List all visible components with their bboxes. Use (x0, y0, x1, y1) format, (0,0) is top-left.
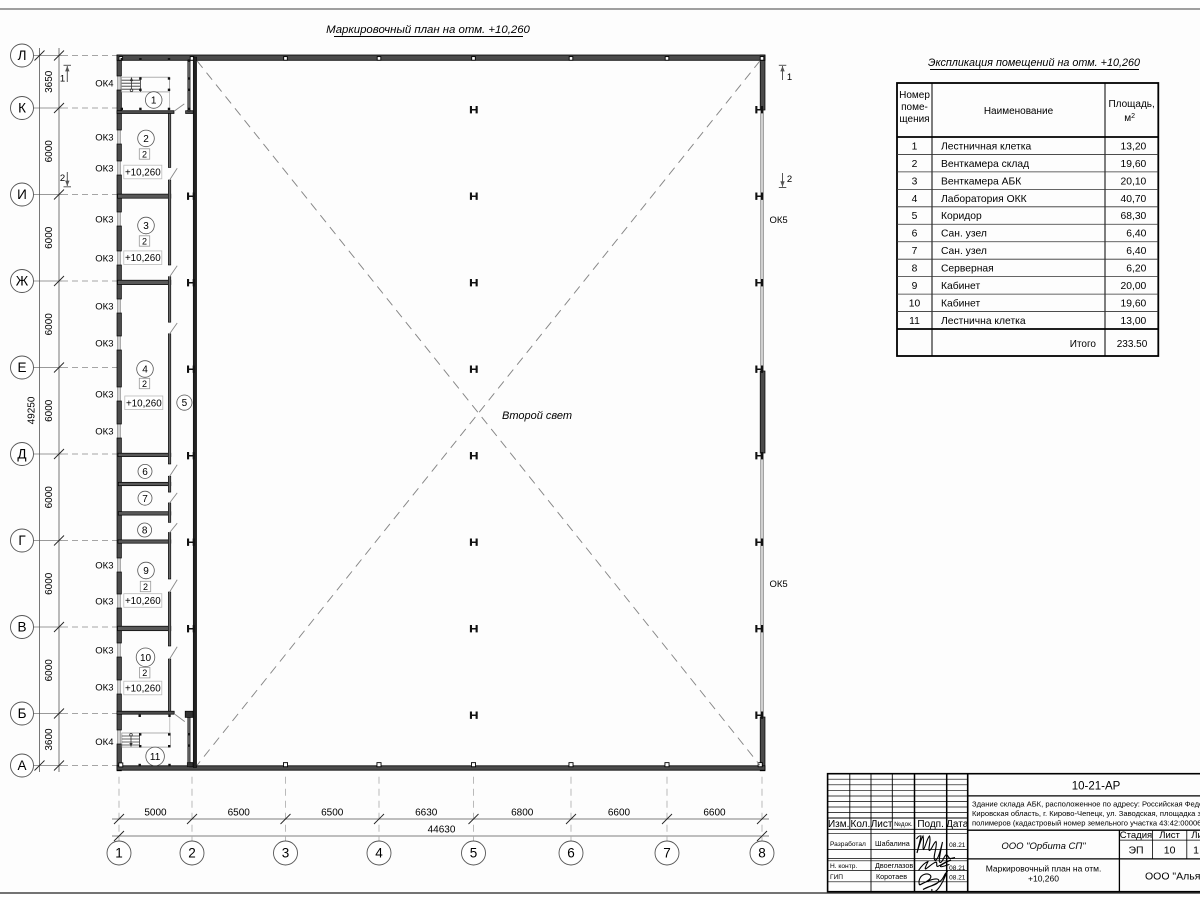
svg-text:Наименование: Наименование (984, 106, 1054, 117)
svg-text:ОК4: ОК4 (95, 79, 113, 90)
svg-text:5: 5 (470, 846, 478, 861)
svg-text:7: 7 (663, 846, 671, 861)
svg-text:6000: 6000 (44, 140, 55, 163)
svg-text:ОК3: ОК3 (95, 254, 113, 265)
svg-text:Ли: Ли (1191, 830, 1200, 841)
svg-text:№док.: №док. (894, 821, 913, 828)
svg-text:ООО "Альянс: ООО "Альянс (1145, 871, 1200, 883)
svg-text:6000: 6000 (44, 572, 55, 595)
svg-text:6000: 6000 (44, 486, 55, 509)
svg-text:полимеров (кадастровый номер з: полимеров (кадастровый номер земельного … (972, 819, 1200, 828)
svg-text:13,00: 13,00 (1121, 316, 1147, 327)
svg-text:10: 10 (140, 653, 152, 664)
svg-text:Здание склада АБК, расположенн: Здание склада АБК, расположенное по адре… (972, 800, 1200, 809)
svg-text:1: 1 (787, 72, 792, 83)
svg-text:Лестнична клетка: Лестнична клетка (941, 316, 1026, 327)
svg-text:ГИП: ГИП (830, 874, 843, 881)
svg-text:+10,260: +10,260 (125, 596, 161, 607)
svg-text:Л: Л (18, 48, 27, 63)
svg-text:6000: 6000 (44, 399, 55, 422)
svg-text:8: 8 (912, 264, 918, 275)
svg-text:40,70: 40,70 (1121, 194, 1147, 205)
svg-text:Разработал: Разработал (830, 840, 866, 848)
svg-text:И: И (17, 187, 27, 202)
svg-text:ОК4: ОК4 (95, 737, 113, 748)
svg-text:Коротаев: Коротаев (876, 872, 907, 881)
svg-text:Лестничная клетка: Лестничная клетка (941, 141, 1031, 152)
svg-text:08.21: 08.21 (949, 865, 966, 872)
svg-text:6800: 6800 (511, 808, 534, 819)
svg-text:2: 2 (60, 173, 65, 184)
svg-text:3: 3 (143, 221, 149, 232)
svg-text:Стадия: Стадия (1120, 830, 1152, 841)
svg-text:4: 4 (912, 194, 918, 205)
svg-text:Экспликация помещений на отм.: Экспликация помещений на отм. +10,260 (928, 57, 1140, 69)
svg-text:Маркировочный план на отм.: Маркировочный план на отм. (986, 864, 1102, 874)
svg-text:Д: Д (17, 447, 26, 462)
svg-text:Кабинет: Кабинет (941, 298, 980, 310)
svg-text:10: 10 (1164, 845, 1176, 857)
svg-text:Кабинет: Кабинет (941, 280, 980, 292)
svg-text:ООО "Орбита СП": ООО "Орбита СП" (1001, 841, 1086, 852)
svg-text:3650: 3650 (44, 70, 55, 93)
svg-text:ОК3: ОК3 (95, 339, 113, 350)
svg-text:13,20: 13,20 (1121, 141, 1147, 152)
svg-text:Е: Е (17, 360, 26, 375)
svg-text:Дата: Дата (946, 819, 969, 830)
svg-text:1: 1 (60, 74, 65, 85)
svg-text:Венткамера склад: Венткамера склад (941, 159, 1029, 170)
svg-text:ОК5: ОК5 (770, 579, 788, 590)
svg-text:ОК3: ОК3 (95, 302, 113, 313)
svg-text:6,20: 6,20 (1126, 264, 1146, 275)
svg-text:щения: щения (899, 114, 929, 125)
svg-text:1: 1 (151, 96, 157, 107)
svg-text:Сан. узел: Сан. узел (941, 229, 987, 240)
svg-text:6000: 6000 (44, 313, 55, 336)
svg-text:4: 4 (375, 846, 383, 861)
svg-text:2: 2 (142, 668, 147, 678)
svg-text:ОК3: ОК3 (95, 646, 113, 657)
svg-text:08.21: 08.21 (949, 842, 966, 849)
svg-text:Ж: Ж (16, 274, 29, 289)
svg-text:6000: 6000 (44, 659, 55, 682)
svg-text:+10,260: +10,260 (1028, 874, 1059, 884)
svg-text:8: 8 (758, 846, 766, 861)
svg-text:А: А (17, 758, 26, 773)
svg-text:ОК3: ОК3 (95, 427, 113, 438)
svg-text:6: 6 (142, 467, 148, 478)
svg-text:Венткамера АБК: Венткамера АБК (941, 176, 1021, 187)
svg-text:19,60: 19,60 (1121, 299, 1147, 310)
svg-text:Двоеглазов: Двоеглазов (875, 861, 913, 870)
svg-text:7: 7 (912, 246, 918, 257)
svg-text:6,40: 6,40 (1126, 246, 1146, 257)
svg-text:19,60: 19,60 (1121, 159, 1147, 170)
svg-text:20,10: 20,10 (1121, 176, 1147, 187)
svg-text:6500: 6500 (228, 808, 251, 819)
svg-text:7: 7 (142, 494, 148, 505)
svg-text:5000: 5000 (144, 808, 167, 819)
svg-text:Н. контр.: Н. контр. (830, 863, 857, 870)
svg-text:2: 2 (142, 379, 147, 389)
svg-text:Кол.: Кол. (851, 819, 871, 830)
svg-text:5: 5 (912, 211, 918, 222)
svg-text:Коридор: Коридор (941, 211, 982, 222)
svg-text:3: 3 (912, 176, 918, 187)
svg-text:Лист: Лист (1159, 830, 1180, 841)
svg-text:ЭП: ЭП (1128, 845, 1143, 857)
svg-text:ОК3: ОК3 (95, 597, 113, 608)
svg-text:Подп.: Подп. (917, 819, 944, 830)
svg-text:233.50: 233.50 (1117, 339, 1148, 350)
svg-text:4: 4 (142, 365, 148, 376)
svg-text:6000: 6000 (44, 226, 55, 249)
svg-text:Серверная: Серверная (941, 264, 994, 275)
svg-text:Сан. узел: Сан. узел (941, 246, 987, 257)
svg-text:ОК3: ОК3 (95, 215, 113, 226)
svg-text:Маркировочный план на отм. +10: Маркировочный план на отм. +10,260 (326, 24, 530, 36)
svg-text:68,30: 68,30 (1121, 211, 1147, 222)
svg-text:Изм.: Изм. (828, 819, 849, 830)
svg-text:+10,260: +10,260 (125, 684, 161, 695)
svg-text:9: 9 (912, 281, 918, 292)
svg-text:08.21: 08.21 (949, 875, 966, 882)
svg-text:ОК3: ОК3 (95, 390, 113, 401)
svg-text:Г: Г (18, 533, 26, 548)
svg-text:2: 2 (188, 846, 196, 861)
svg-text:ОК3: ОК3 (95, 561, 113, 572)
svg-text:+10,260: +10,260 (126, 398, 162, 409)
svg-text:+10,260: +10,260 (125, 168, 161, 179)
svg-text:Лист: Лист (871, 819, 893, 830)
svg-text:1: 1 (1193, 845, 1199, 857)
svg-text:Шабалина: Шабалина (875, 839, 910, 848)
svg-text:Лаборатория ОКК: Лаборатория ОКК (941, 193, 1027, 205)
svg-text:49250: 49250 (27, 396, 38, 424)
svg-text:8: 8 (142, 526, 148, 537)
svg-text:Номер: Номер (899, 90, 930, 101)
svg-text:1: 1 (912, 141, 918, 152)
svg-text:6500: 6500 (321, 808, 344, 819)
svg-text:6: 6 (567, 846, 575, 861)
svg-text:2: 2 (142, 149, 147, 159)
svg-text:ОК5: ОК5 (770, 215, 788, 226)
svg-text:2: 2 (142, 236, 147, 246)
svg-text:11: 11 (909, 316, 920, 327)
svg-text:3: 3 (282, 846, 290, 861)
svg-text:Б: Б (18, 706, 27, 721)
svg-text:10: 10 (909, 299, 921, 310)
svg-text:+10,260: +10,260 (125, 253, 161, 264)
svg-text:Итого: Итого (1070, 339, 1097, 350)
svg-text:2: 2 (912, 159, 918, 170)
svg-text:6600: 6600 (703, 808, 726, 819)
svg-text:В: В (17, 620, 26, 635)
svg-text:9: 9 (143, 566, 149, 577)
svg-text:2: 2 (787, 174, 792, 185)
svg-text:2: 2 (143, 582, 148, 592)
svg-text:44630: 44630 (428, 825, 456, 836)
svg-text:поме-: поме- (901, 102, 928, 113)
svg-text:5: 5 (182, 398, 188, 409)
svg-text:3600: 3600 (44, 728, 55, 751)
svg-text:6600: 6600 (608, 808, 631, 819)
svg-text:ОК3: ОК3 (95, 683, 113, 694)
svg-text:20,00: 20,00 (1121, 281, 1147, 292)
svg-text:1: 1 (115, 846, 123, 861)
svg-text:2: 2 (143, 134, 149, 145)
svg-text:ОК3: ОК3 (95, 164, 113, 175)
svg-text:К: К (18, 101, 26, 116)
svg-text:ОК3: ОК3 (95, 133, 113, 144)
svg-text:Второй свет: Второй свет (502, 410, 572, 422)
svg-text:6,40: 6,40 (1126, 229, 1146, 240)
svg-text:Площадь,: Площадь, (1108, 99, 1154, 110)
svg-text:10-21-АР: 10-21-АР (1072, 781, 1121, 793)
svg-text:6630: 6630 (415, 808, 438, 819)
svg-text:11: 11 (150, 752, 161, 763)
svg-text:Кировская область, г. Кирово-Ч: Кировская область, г. Кирово-Чепецк, ул.… (972, 809, 1200, 818)
svg-text:6: 6 (912, 229, 918, 240)
